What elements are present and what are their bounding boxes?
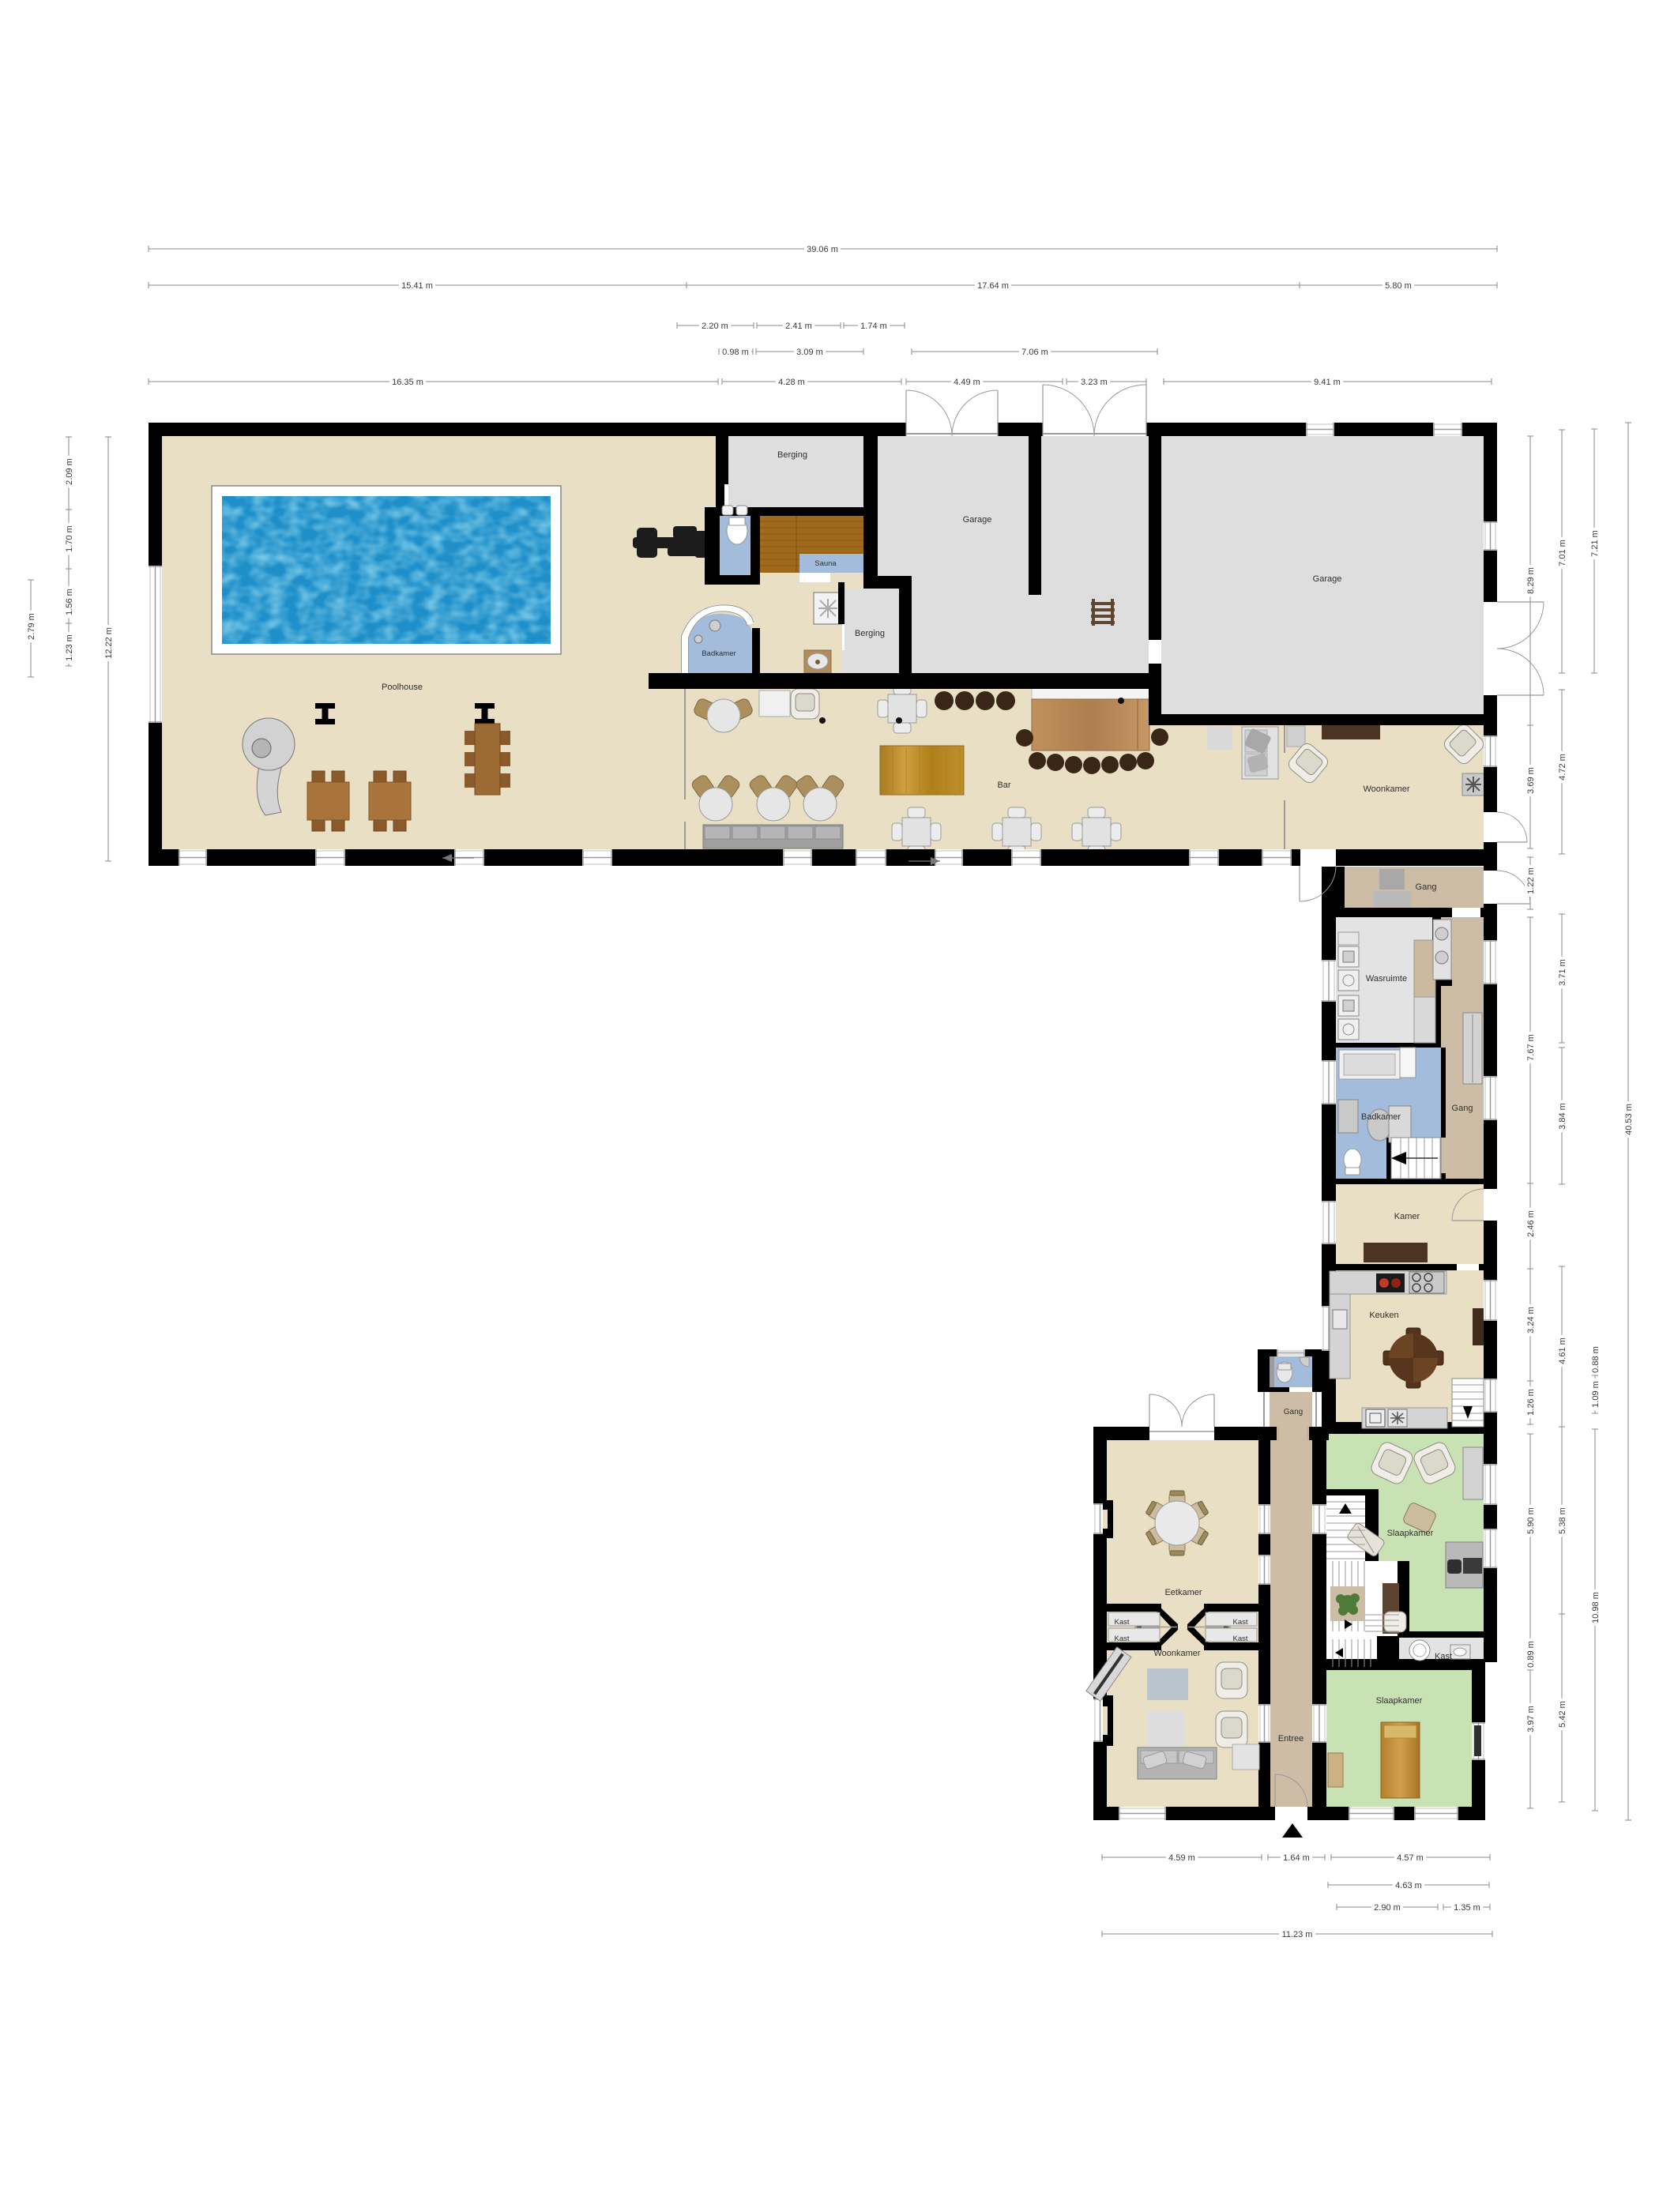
svg-text:2.90 m: 2.90 m [1374, 1903, 1401, 1913]
svg-text:3.24 m: 3.24 m [1526, 1307, 1536, 1334]
svg-text:7.21 m: 7.21 m [1590, 530, 1600, 557]
svg-text:3.71 m: 3.71 m [1558, 959, 1567, 986]
svg-text:Entree: Entree [1278, 1734, 1303, 1744]
svg-text:15.41 m: 15.41 m [401, 281, 433, 291]
svg-text:4.28 m: 4.28 m [778, 378, 805, 387]
svg-text:Kast: Kast [1114, 1635, 1129, 1643]
svg-text:Wasruimte: Wasruimte [1366, 974, 1407, 984]
svg-text:39.06 m: 39.06 m [807, 245, 838, 254]
svg-text:Kamer: Kamer [1394, 1212, 1420, 1221]
svg-text:Berging: Berging [777, 450, 807, 460]
svg-text:3.97 m: 3.97 m [1526, 1706, 1536, 1732]
svg-text:8.29 m: 8.29 m [1526, 567, 1536, 594]
svg-text:Poolhouse: Poolhouse [382, 683, 423, 692]
svg-text:4.72 m: 4.72 m [1558, 754, 1567, 781]
svg-text:Berging: Berging [855, 629, 885, 638]
svg-text:40.53 m: 40.53 m [1624, 1104, 1634, 1135]
svg-text:1.35 m: 1.35 m [1454, 1903, 1480, 1913]
svg-text:1.64 m: 1.64 m [1283, 1853, 1310, 1863]
svg-text:Badkamer: Badkamer [1361, 1112, 1401, 1122]
svg-text:7.01 m: 7.01 m [1558, 540, 1567, 566]
svg-text:0.98 m: 0.98 m [722, 348, 749, 357]
svg-text:5.42 m: 5.42 m [1558, 1701, 1567, 1728]
svg-text:4.59 m: 4.59 m [1168, 1853, 1195, 1863]
svg-text:Sauna: Sauna [814, 559, 837, 568]
svg-text:Gang: Gang [1452, 1104, 1473, 1113]
svg-text:3.23 m: 3.23 m [1081, 378, 1108, 387]
svg-text:2.09 m: 2.09 m [65, 458, 74, 485]
svg-text:7.06 m: 7.06 m [1021, 348, 1048, 357]
svg-text:0.88 m: 0.88 m [1591, 1346, 1601, 1373]
svg-text:Garage: Garage [963, 515, 992, 525]
svg-text:Woonkamer: Woonkamer [1153, 1649, 1200, 1658]
svg-text:2.20 m: 2.20 m [702, 322, 728, 331]
svg-text:Bar: Bar [997, 781, 1010, 790]
svg-text:4.57 m: 4.57 m [1397, 1853, 1424, 1863]
svg-text:Badkamer: Badkamer [702, 649, 735, 658]
svg-text:1.23 m: 1.23 m [65, 634, 74, 661]
svg-text:Kast: Kast [1435, 1652, 1452, 1661]
svg-text:5.80 m: 5.80 m [1385, 281, 1412, 291]
svg-text:Kast: Kast [1232, 1618, 1247, 1627]
svg-text:1.74 m: 1.74 m [860, 322, 887, 331]
svg-text:16.35 m: 16.35 m [392, 378, 423, 387]
svg-text:Keuken: Keuken [1369, 1311, 1398, 1320]
svg-text:Slaapkamer: Slaapkamer [1376, 1696, 1423, 1706]
svg-text:Gang: Gang [1416, 882, 1437, 892]
svg-text:5.90 m: 5.90 m [1526, 1507, 1536, 1534]
svg-text:1.26 m: 1.26 m [1526, 1389, 1536, 1416]
svg-text:5.38 m: 5.38 m [1558, 1507, 1567, 1534]
svg-text:Kast: Kast [1232, 1635, 1247, 1643]
svg-text:12.22 m: 12.22 m [104, 627, 114, 659]
svg-text:Woonkamer: Woonkamer [1363, 784, 1409, 794]
svg-text:9.41 m: 9.41 m [1314, 378, 1341, 387]
svg-text:4.63 m: 4.63 m [1395, 1881, 1422, 1890]
svg-text:10.98 m: 10.98 m [1591, 1592, 1601, 1623]
svg-text:Slaapkamer: Slaapkamer [1387, 1529, 1434, 1538]
svg-text:3.09 m: 3.09 m [796, 348, 823, 357]
svg-text:17.64 m: 17.64 m [977, 281, 1009, 291]
svg-text:1.70 m: 1.70 m [65, 525, 74, 552]
svg-text:3.84 m: 3.84 m [1558, 1103, 1567, 1130]
svg-text:4.49 m: 4.49 m [954, 378, 980, 387]
svg-text:1.09 m: 1.09 m [1591, 1381, 1601, 1408]
svg-text:3.69 m: 3.69 m [1526, 767, 1536, 794]
svg-text:Kast: Kast [1114, 1618, 1129, 1627]
svg-text:Eetkamer: Eetkamer [1164, 1588, 1202, 1597]
svg-text:Gang: Gang [1284, 1408, 1303, 1416]
svg-text:7.67 m: 7.67 m [1526, 1034, 1536, 1061]
svg-text:0.89 m: 0.89 m [1526, 1641, 1536, 1668]
svg-text:Garage: Garage [1313, 574, 1342, 584]
svg-text:1.22 m: 1.22 m [1526, 867, 1536, 894]
svg-text:11.23 m: 11.23 m [1282, 1930, 1313, 1939]
svg-text:4.61 m: 4.61 m [1558, 1337, 1567, 1364]
svg-text:2.41 m: 2.41 m [785, 322, 812, 331]
svg-text:2.46 m: 2.46 m [1526, 1210, 1536, 1237]
svg-text:1.56 m: 1.56 m [65, 589, 74, 615]
svg-text:2.79 m: 2.79 m [27, 613, 36, 640]
